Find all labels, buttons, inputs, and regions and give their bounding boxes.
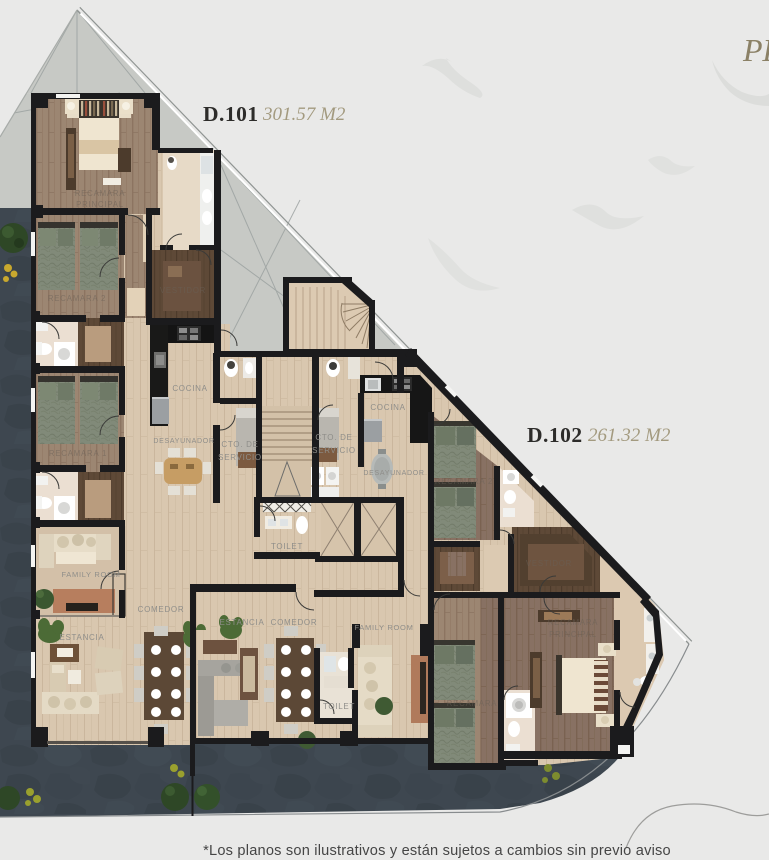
svg-text:SERVICIO: SERVICIO bbox=[312, 446, 356, 455]
svg-text:TOILET: TOILET bbox=[271, 542, 303, 551]
svg-text:DESAYUNADOR: DESAYUNADOR bbox=[153, 438, 214, 445]
svg-text:DESAYUNADOR: DESAYUNADOR bbox=[363, 470, 424, 477]
svg-text:SERVICIO: SERVICIO bbox=[218, 453, 262, 462]
svg-text:301.57 M2: 301.57 M2 bbox=[262, 104, 346, 125]
svg-text:VESTIDOR: VESTIDOR bbox=[160, 286, 206, 295]
svg-text:RECAMARA: RECAMARA bbox=[548, 618, 599, 627]
svg-text:COMEDOR: COMEDOR bbox=[271, 618, 318, 627]
svg-text:COMEDOR: COMEDOR bbox=[138, 605, 185, 614]
svg-text:D.101: D.101 bbox=[203, 102, 259, 126]
svg-text:RECAMARA 1: RECAMARA 1 bbox=[49, 449, 107, 458]
svg-text:ESTANCIA: ESTANCIA bbox=[219, 618, 264, 627]
svg-text:VESTIDOR: VESTIDOR bbox=[526, 559, 572, 568]
svg-text:*Los planos son ilustrativos y: *Los planos son ilustrativos y están suj… bbox=[203, 843, 671, 859]
svg-text:TOILET: TOILET bbox=[323, 702, 355, 711]
svg-text:RECAMARA 2: RECAMARA 2 bbox=[48, 294, 106, 303]
svg-text:PL: PL bbox=[742, 32, 769, 68]
svg-text:RECAMARA 2: RECAMARA 2 bbox=[435, 477, 493, 486]
svg-text:PRINCIPAL: PRINCIPAL bbox=[549, 630, 597, 639]
svg-text:RECAMARA: RECAMARA bbox=[75, 189, 126, 198]
svg-text:ESTANCIA: ESTANCIA bbox=[59, 633, 104, 642]
svg-text:CTO. DE: CTO. DE bbox=[221, 440, 258, 449]
svg-text:D.102: D.102 bbox=[527, 423, 583, 447]
svg-text:RECAMARA: RECAMARA bbox=[447, 699, 498, 708]
svg-text:COCINA: COCINA bbox=[370, 403, 405, 412]
svg-text:FAMILY ROOM: FAMILY ROOM bbox=[61, 570, 120, 579]
svg-text:261.32 M2: 261.32 M2 bbox=[588, 425, 671, 446]
svg-text:PRINCIPAL: PRINCIPAL bbox=[76, 200, 124, 209]
svg-text:CTO. DE: CTO. DE bbox=[315, 433, 352, 442]
svg-text:FAMILY ROOM: FAMILY ROOM bbox=[354, 623, 413, 632]
svg-text:COCINA: COCINA bbox=[172, 384, 207, 393]
